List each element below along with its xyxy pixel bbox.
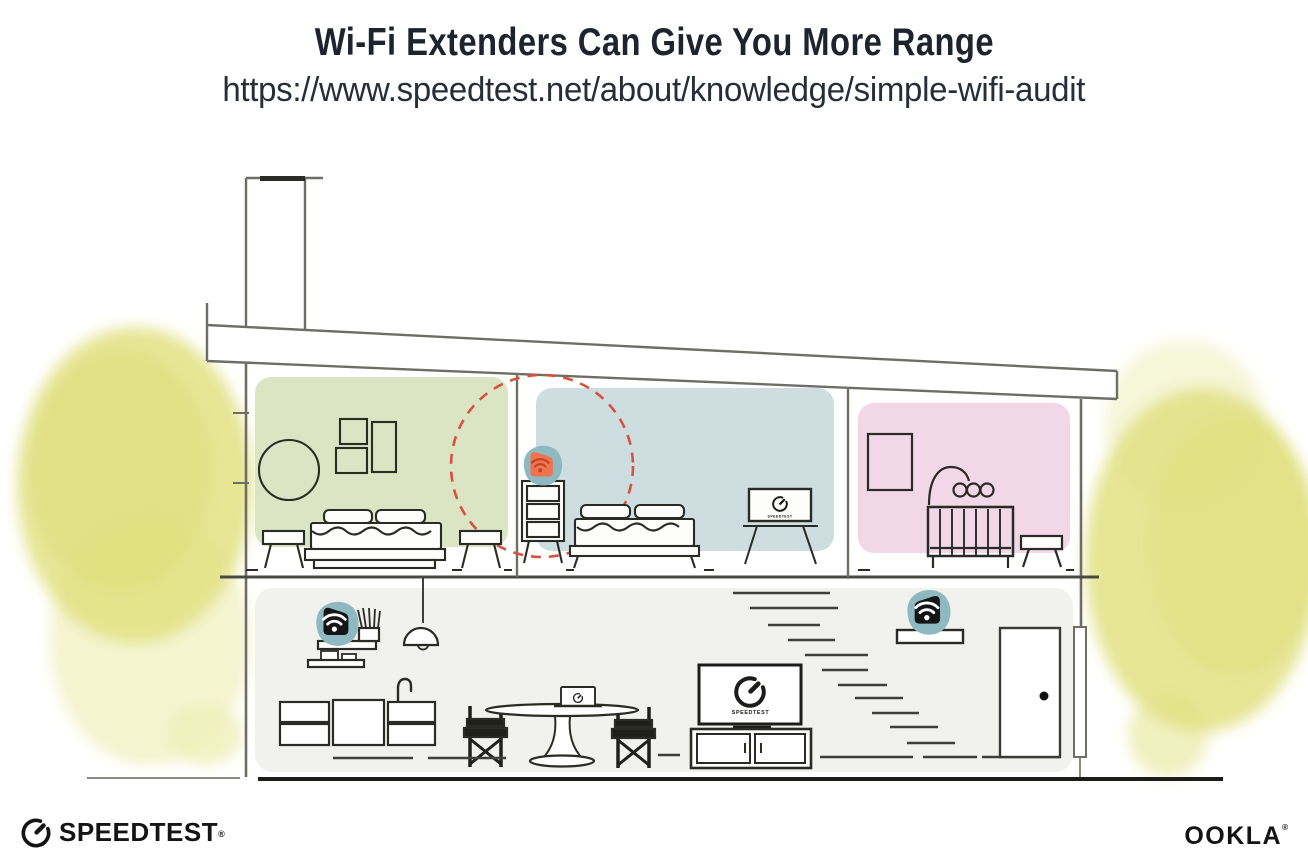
bedroom-tv: SPEEDTEST bbox=[743, 489, 818, 564]
wifi-extender-on-entry-shelf bbox=[907, 590, 950, 635]
nightstand-right bbox=[460, 531, 501, 568]
tv-cabinet bbox=[691, 729, 811, 768]
source-url: https://www.speedtest.net/about/knowledg… bbox=[0, 71, 1308, 110]
living-tv-label: SPEEDTEST bbox=[732, 710, 770, 716]
header: Wi-Fi Extenders Can Give You More Range … bbox=[0, 0, 1308, 110]
page-title: Wi-Fi Extenders Can Give You More Range bbox=[0, 22, 1308, 65]
bed-green bbox=[305, 510, 445, 568]
front-door bbox=[1000, 628, 1060, 757]
infographic-canvas: Wi-Fi Extenders Can Give You More Range … bbox=[0, 0, 1308, 861]
speedtest-trademark: ® bbox=[218, 829, 225, 839]
chimney bbox=[246, 176, 323, 330]
side-window bbox=[1074, 627, 1086, 778]
bed-blue bbox=[570, 505, 699, 568]
tree-blob-right bbox=[1085, 340, 1308, 777]
nightstand-left bbox=[263, 531, 304, 568]
wifi-extender-on-dresser bbox=[524, 446, 562, 486]
house-illustration: SPEEDTEST bbox=[0, 0, 1308, 861]
wifi-router-on-shelf bbox=[316, 602, 358, 646]
laptop bbox=[554, 687, 602, 706]
speedtest-wordmark: SPEEDTEST bbox=[59, 817, 218, 848]
speedtest-logo: SPEEDTEST® bbox=[20, 816, 225, 848]
speedtest-gauge-icon bbox=[20, 816, 52, 848]
ookla-wordmark: OOKLA bbox=[1184, 822, 1282, 851]
chimney-cap bbox=[260, 176, 305, 181]
bedroom-tv-label: SPEEDTEST bbox=[768, 515, 793, 519]
source-url-text: https://www.speedtest.net/about/knowledg… bbox=[223, 71, 1086, 110]
ookla-logo: OOKLA® bbox=[1184, 822, 1288, 851]
tree-blob-left bbox=[17, 327, 253, 765]
living-tv: SPEEDTEST bbox=[691, 665, 811, 768]
door-knob bbox=[1040, 692, 1049, 701]
ookla-trademark: ® bbox=[1282, 823, 1288, 832]
ground bbox=[87, 778, 1223, 779]
page-title-text: Wi-Fi Extenders Can Give You More Range bbox=[314, 22, 993, 65]
